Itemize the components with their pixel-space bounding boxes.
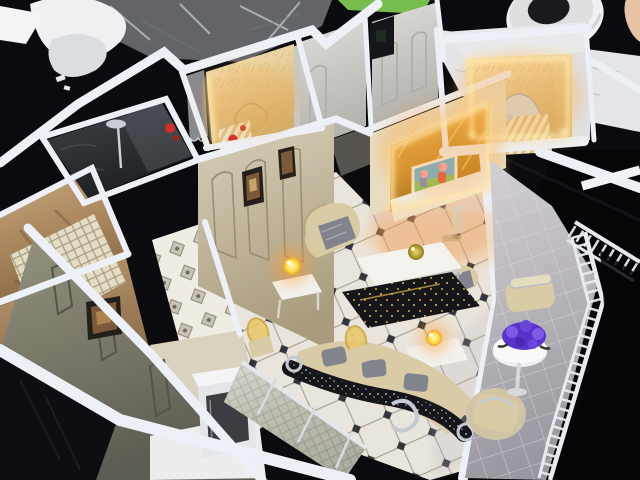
red-prop — [165, 123, 175, 133]
picture-frame-2 — [278, 146, 296, 180]
miniature-apartment-photo — [0, 0, 640, 480]
table-lamp-ball-2 — [426, 330, 442, 346]
gold-ball-ornament — [408, 244, 424, 260]
balcony-sofa — [504, 273, 556, 313]
table-lamp-ball — [283, 257, 301, 275]
picture-frame-1 — [242, 166, 264, 207]
shower-head — [106, 120, 126, 129]
photo-canvas — [0, 0, 640, 480]
